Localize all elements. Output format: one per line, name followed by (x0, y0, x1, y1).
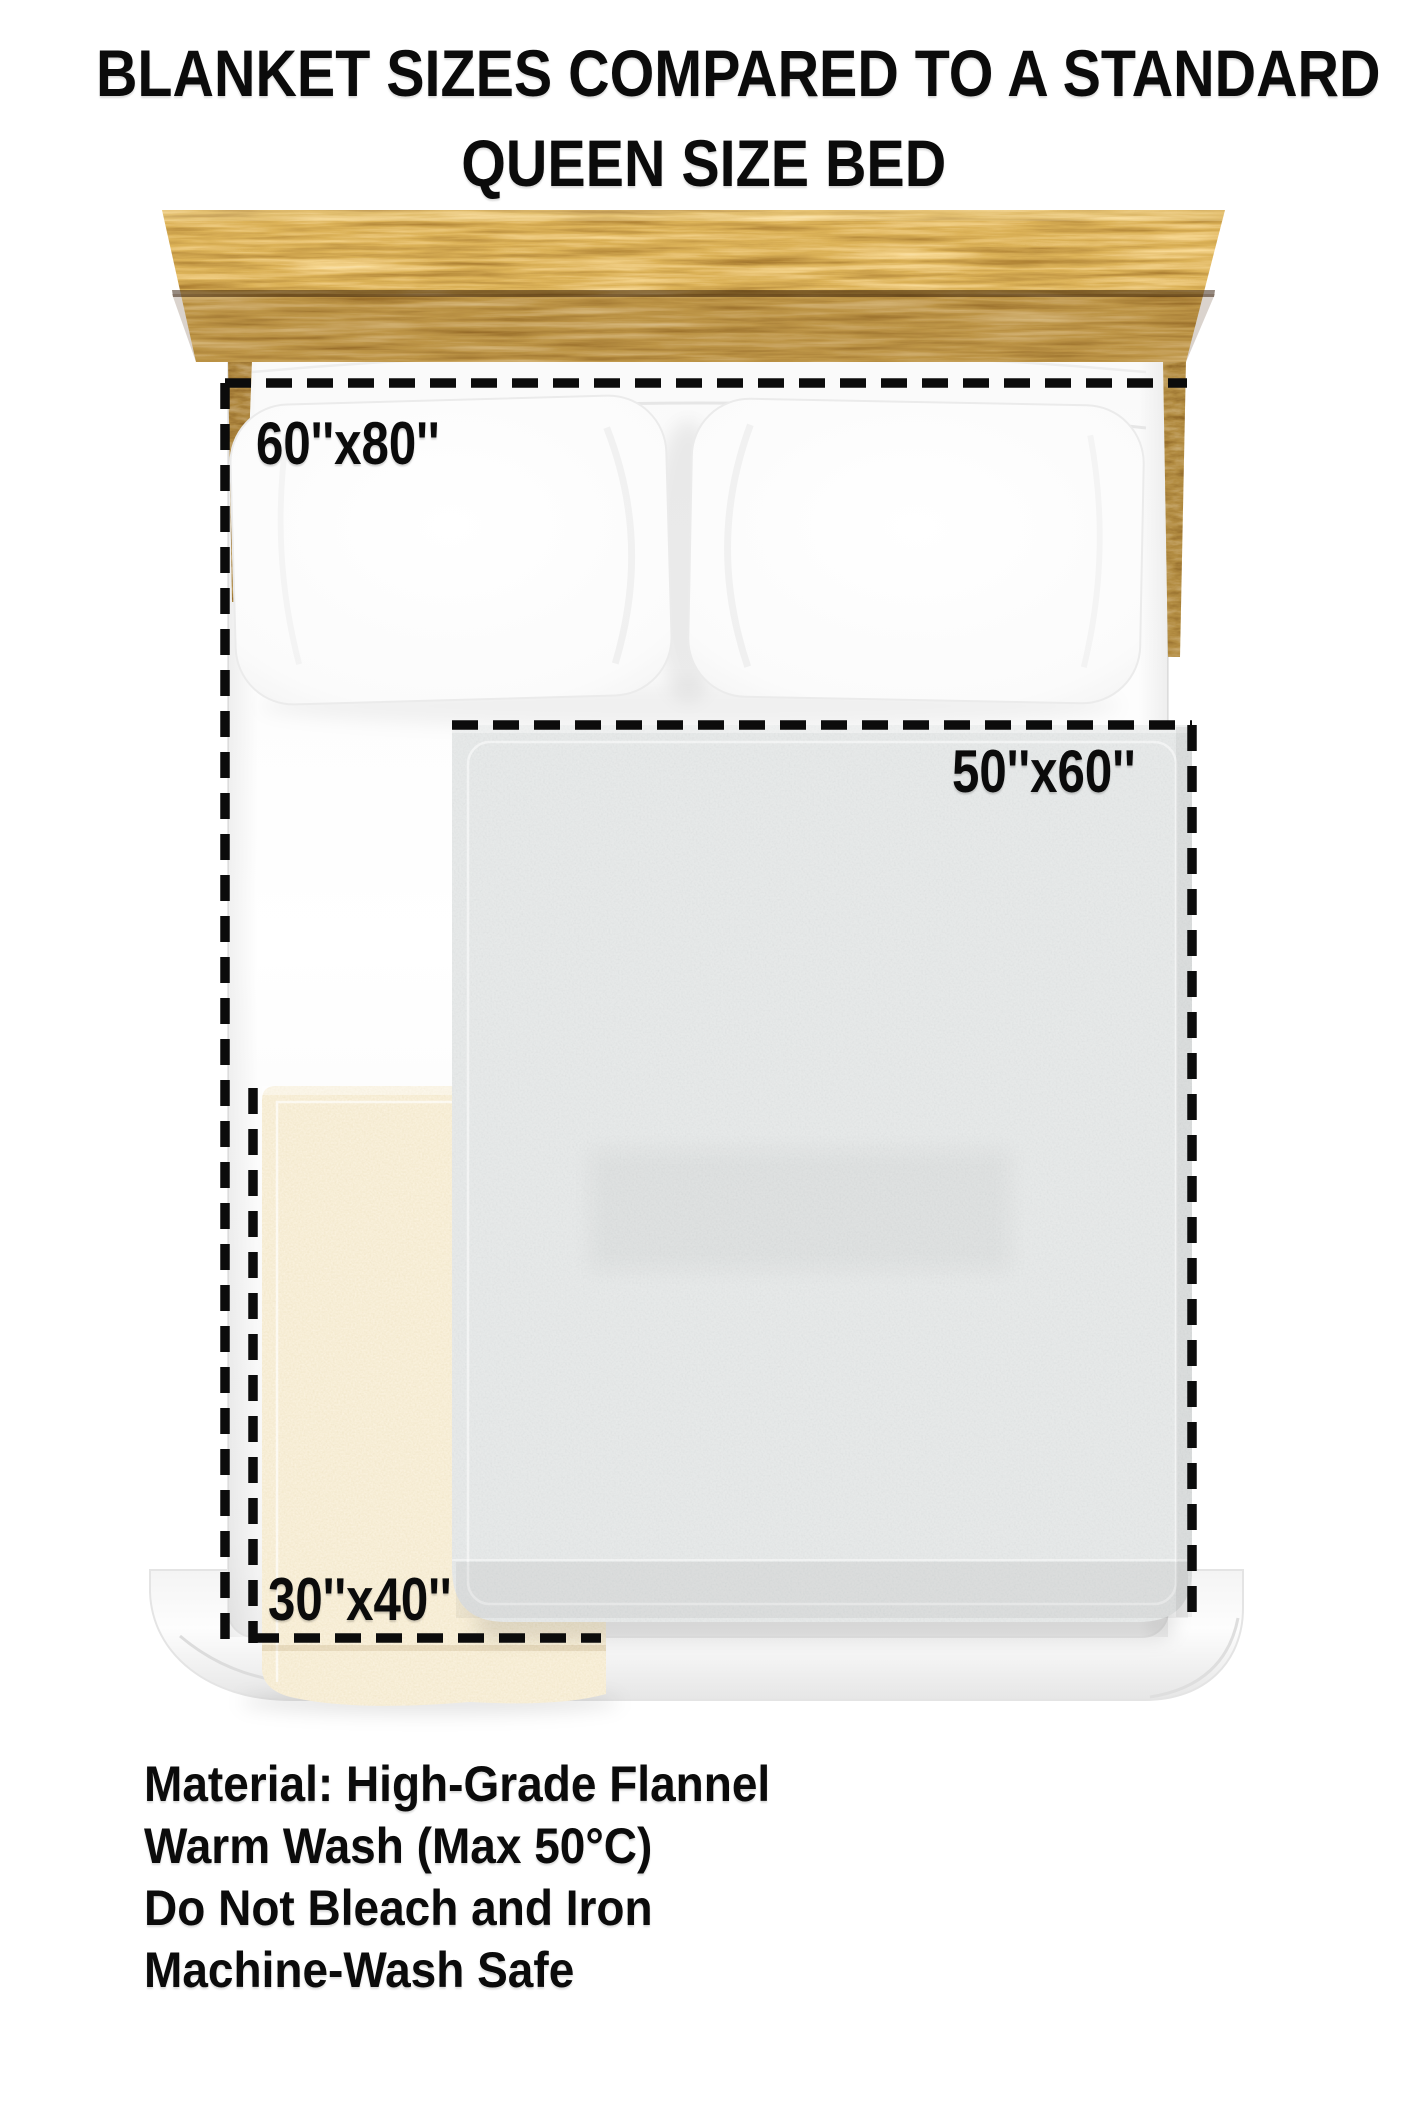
size-label-60x80: 60''x80'' (256, 414, 480, 474)
size-label-50x60: 50''x60'' (952, 742, 1176, 802)
pillow-right (687, 398, 1145, 705)
title-line-2: QUEEN SIZE BED (0, 118, 1408, 208)
title-line-1: BLANKET SIZES COMPARED TO A STANDARD (0, 28, 1408, 118)
care-info-block: Material: High-Grade Flannel Warm Wash (… (144, 1753, 825, 2001)
page-title: BLANKET SIZES COMPARED TO A STANDARD QUE… (0, 28, 1408, 208)
care-line-bleach: Do Not Bleach and Iron (144, 1877, 825, 1939)
blanket-50x60 (452, 725, 1192, 1640)
care-line-wash: Warm Wash (Max 50°C) (144, 1815, 825, 1877)
size-label-30x40: 30''x40'' (268, 1570, 492, 1630)
infographic-canvas: BLANKET SIZES COMPARED TO A STANDARD QUE… (0, 0, 1408, 2112)
care-line-material: Material: High-Grade Flannel (144, 1753, 825, 1815)
care-line-machine: Machine-Wash Safe (144, 1939, 825, 2001)
